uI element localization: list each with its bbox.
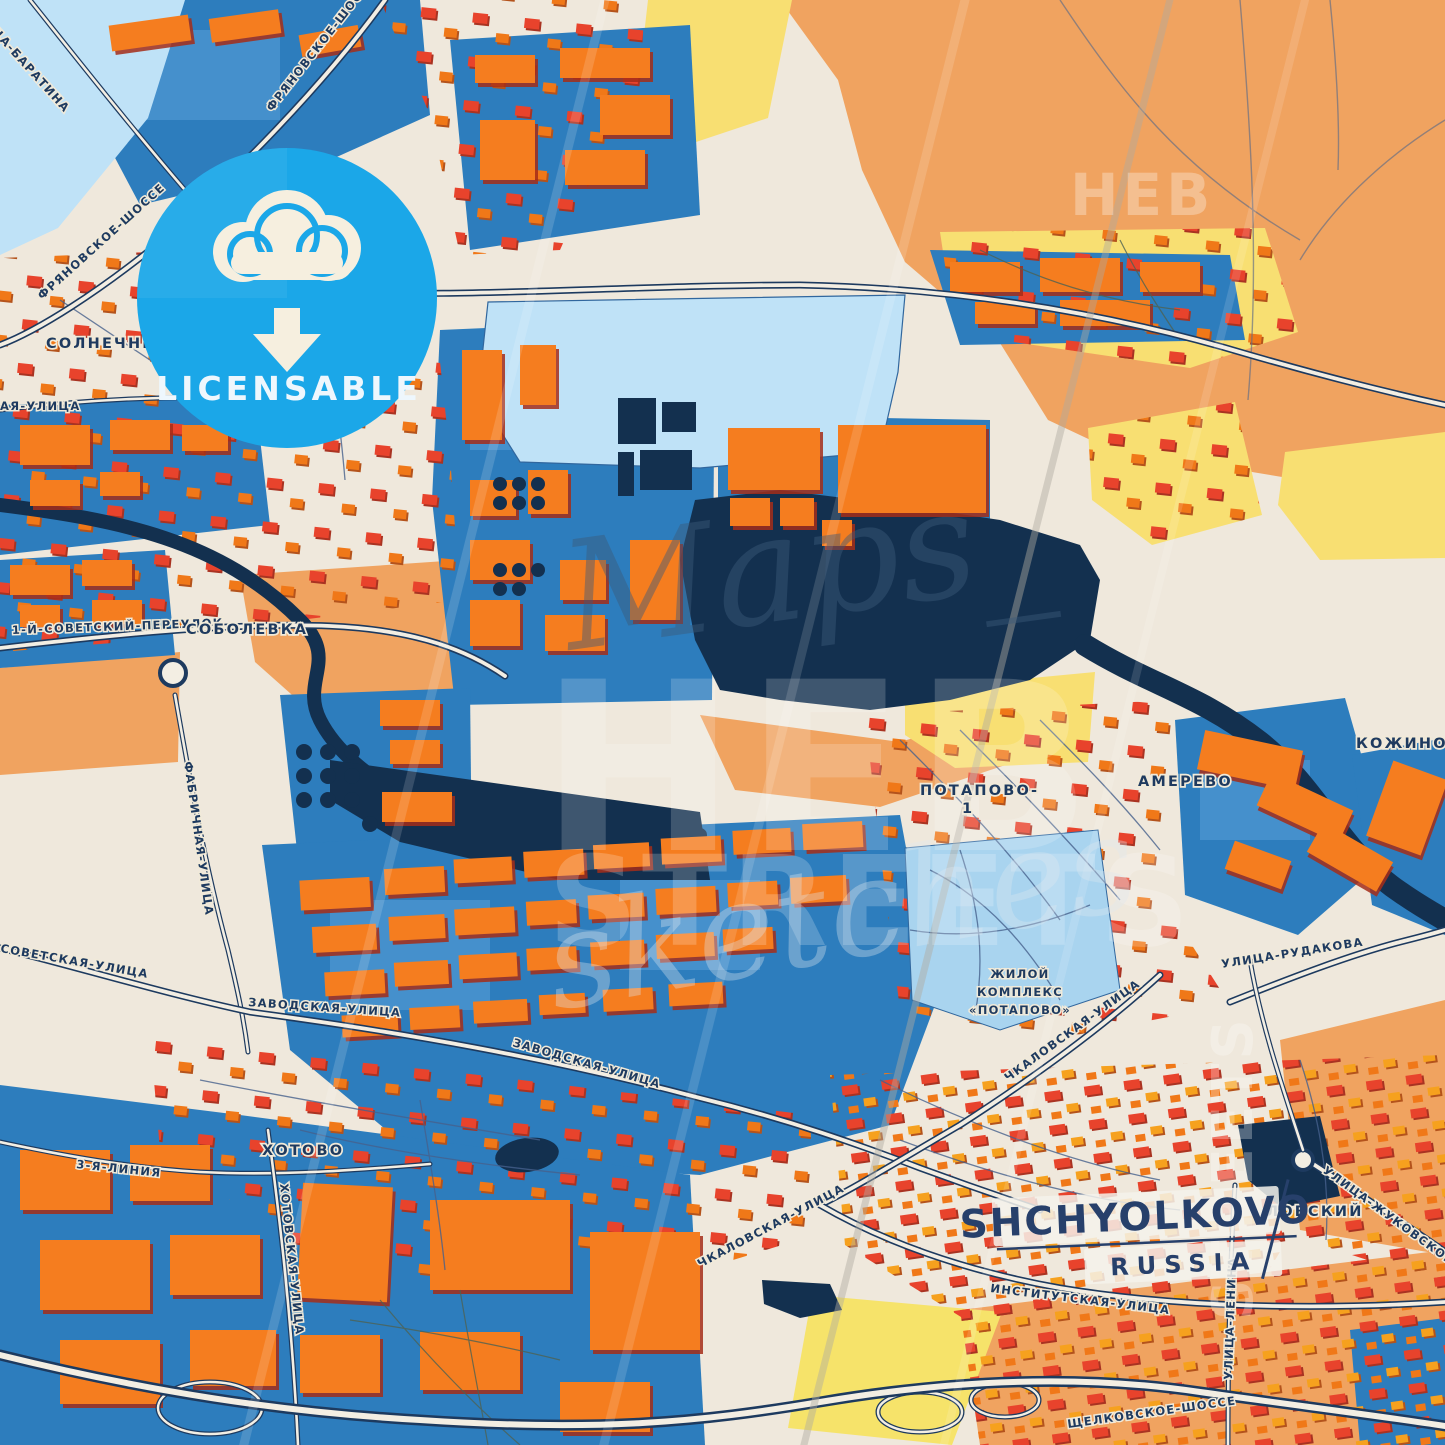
place-label-kozhino: КОЖИНО (1356, 736, 1445, 752)
roundabout (160, 660, 186, 686)
street-label-aya: АЯ-УЛИЦА (0, 399, 81, 413)
place-label-amerevo: АМЕРЕВО (1138, 774, 1233, 790)
complex-label-line2: КОМПЛЕКС (977, 985, 1063, 999)
watermark-heb-corner: HEB (1070, 161, 1214, 229)
complex-label-line1: ЖИЛОЙ (990, 966, 1049, 981)
licensable-badge: LICENSABLE (137, 148, 437, 448)
place-label-sobolevka: СОБОЛЕВКА (186, 622, 308, 638)
map-poster: Maps_ HEB STREETS sketches HEB STREETS У… (0, 0, 1445, 1445)
map-canvas: Maps_ HEB STREETS sketches HEB STREETS У… (0, 0, 1445, 1445)
place-label-potapovo-line2: 1 (962, 801, 974, 817)
place-label-potapovo-line1: ПОТАПОВО- (920, 783, 1039, 799)
badge-label: LICENSABLE (156, 369, 422, 408)
roundabout-zhukovsky (1293, 1150, 1313, 1170)
complex-label-line3: «ПОТАПОВО» (969, 1003, 1071, 1017)
place-label-khotovo: ХОТОВО (262, 1143, 344, 1159)
